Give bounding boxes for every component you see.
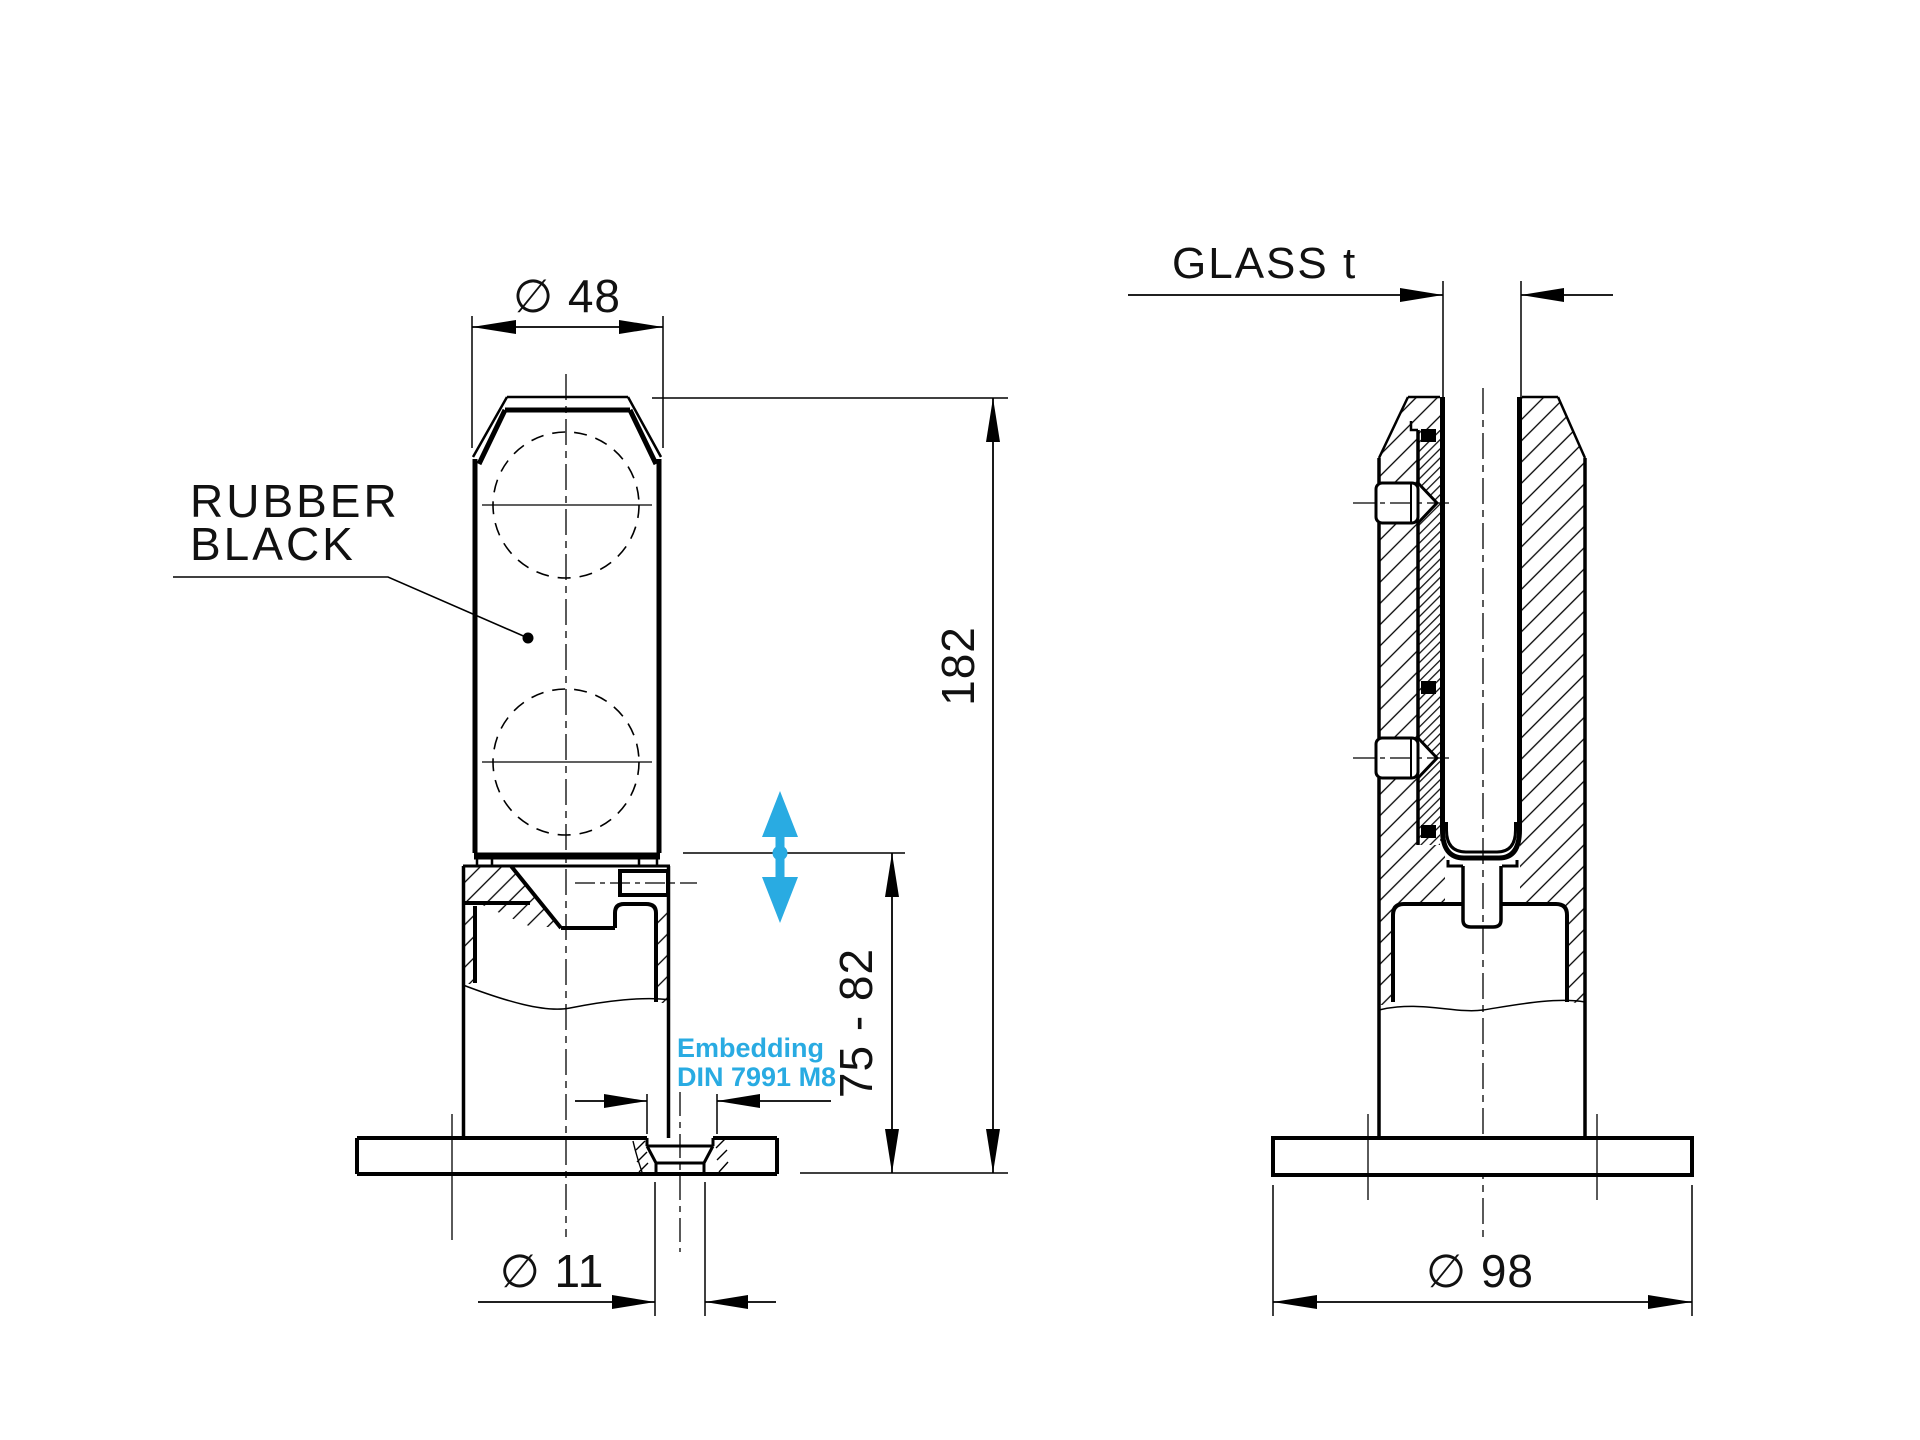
rubber-label: RUBBER BLACK [173,475,534,644]
dim-glass-thickness: GLASS t [1128,239,1613,397]
technical-drawing-page: RUBBER BLACK ∅ 48 182 75 - 82 [0,0,1920,1440]
glass-spigot-drawing: RUBBER BLACK ∅ 48 182 75 - 82 [0,0,1920,1440]
dim-hole-diameter-text: ∅ 11 [500,1245,605,1297]
embedding-note: Embedding DIN 7991 M8 [575,1033,836,1134]
base-section-front [463,858,697,1138]
embedding-note-line1: Embedding [677,1033,824,1063]
dim-glass-thickness-text: GLASS t [1172,239,1357,288]
dim-embed-range-text: 75 - 82 [830,948,882,1098]
rubber-label-line2: BLACK [190,518,356,570]
front-view: RUBBER BLACK ∅ 48 182 75 - 82 [173,270,1008,1316]
side-view: GLASS t ∅ 98 [1128,239,1692,1316]
clamp-body-front [473,374,661,1237]
dim-top-diameter-text: ∅ 48 [513,270,621,322]
base-plate-front [357,1092,777,1252]
dim-height-text: 182 [932,626,984,706]
dim-hole-diameter: ∅ 11 [478,1182,776,1316]
dim-base-diameter-text: ∅ 98 [1426,1245,1534,1297]
embedding-note-line2: DIN 7991 M8 [677,1062,836,1092]
adjust-arrow-icon [762,791,798,923]
leader-dot [523,633,534,644]
